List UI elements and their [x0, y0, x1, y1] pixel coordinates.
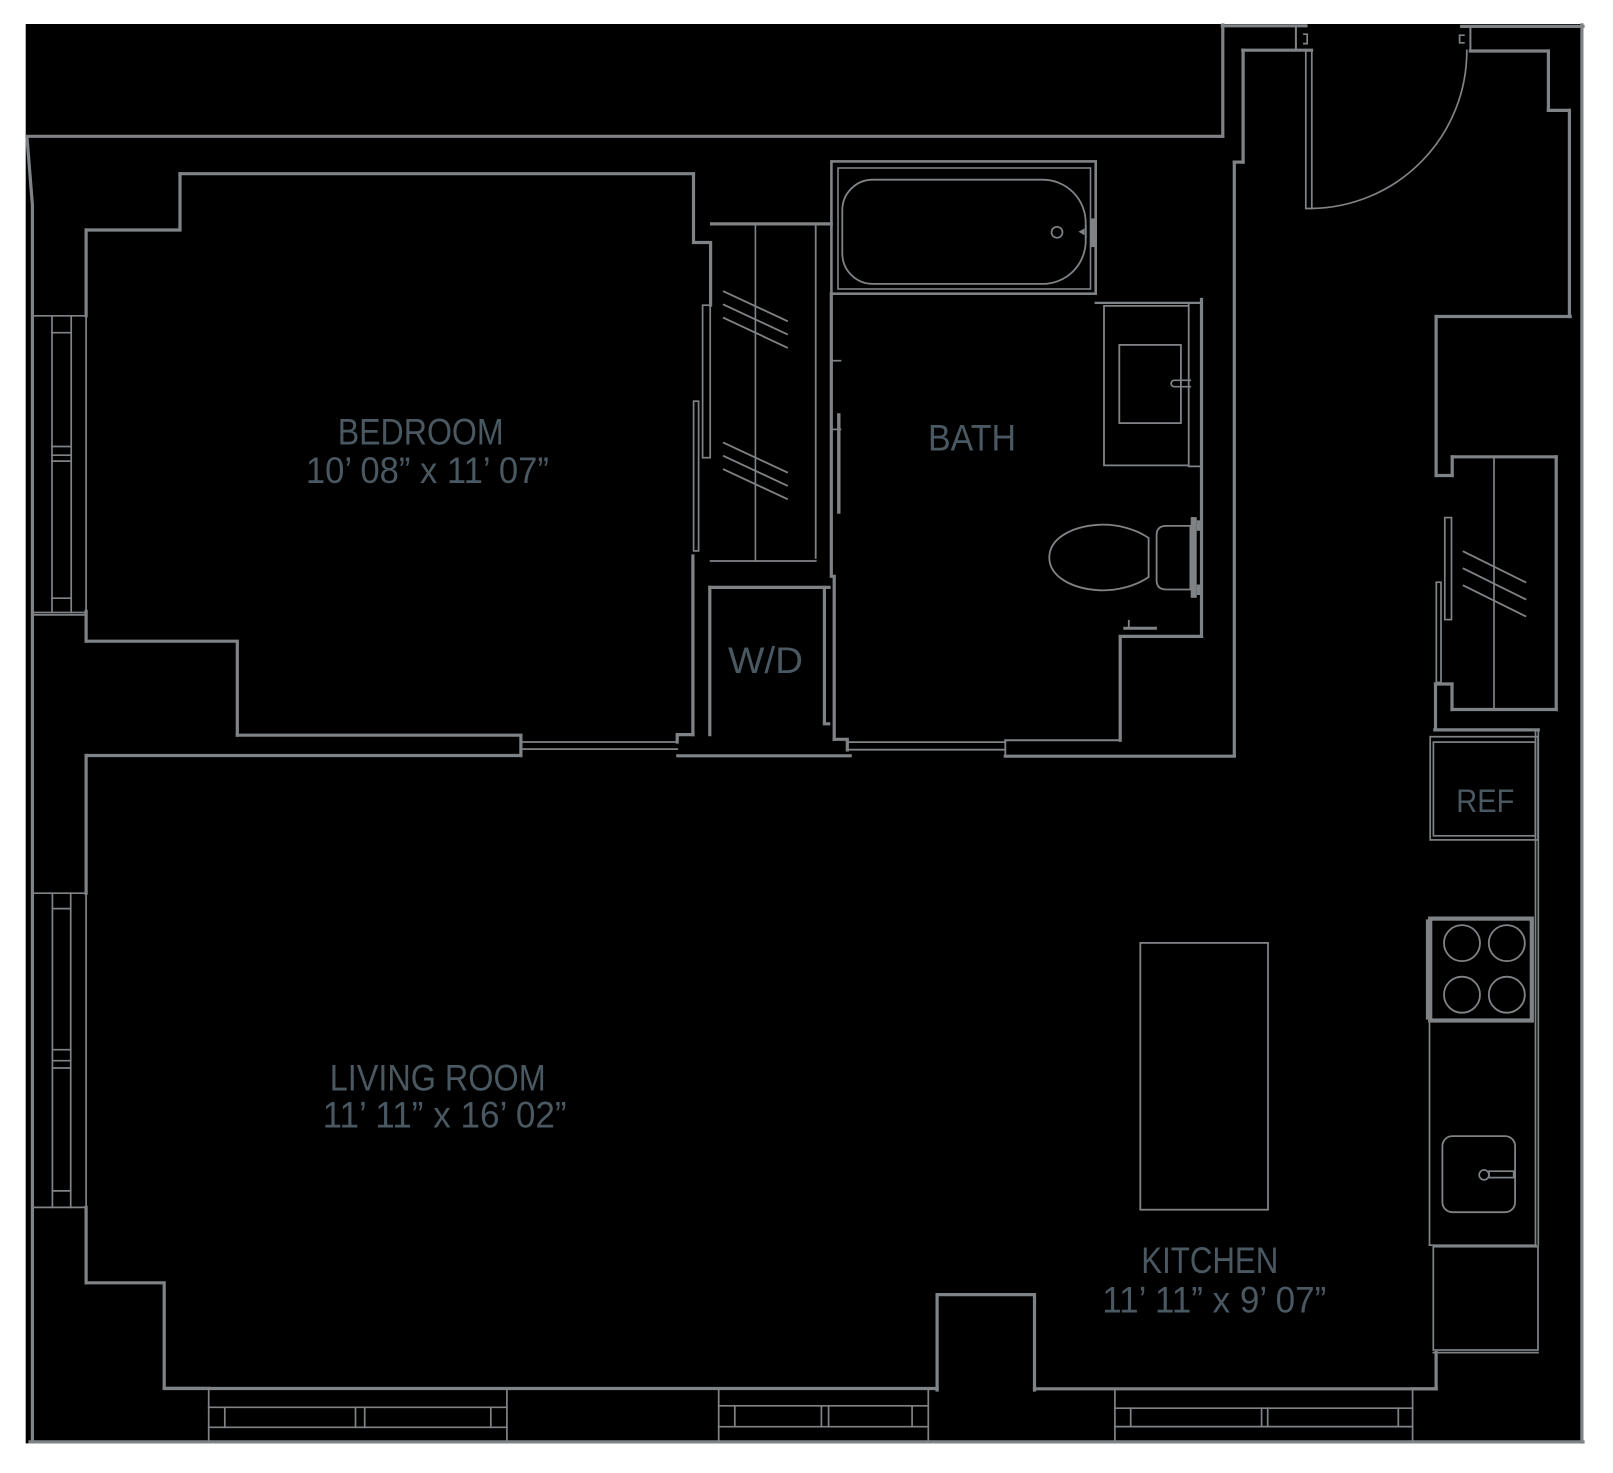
svg-text:11’ 11” x 16’ 02”: 11’ 11” x 16’ 02” — [323, 1094, 567, 1136]
svg-text:KITCHEN: KITCHEN — [1141, 1239, 1278, 1281]
svg-text:BEDROOM: BEDROOM — [338, 411, 504, 453]
svg-text:W/D: W/D — [728, 639, 803, 681]
svg-text:11’ 11” x 9’ 07”: 11’ 11” x 9’ 07” — [1102, 1279, 1326, 1321]
svg-text:REF: REF — [1456, 783, 1514, 819]
svg-text:10’ 08” x 11’ 07”: 10’ 08” x 11’ 07” — [306, 449, 549, 491]
svg-text:BATH: BATH — [928, 416, 1016, 458]
svg-text:LIVING ROOM: LIVING ROOM — [330, 1057, 546, 1099]
